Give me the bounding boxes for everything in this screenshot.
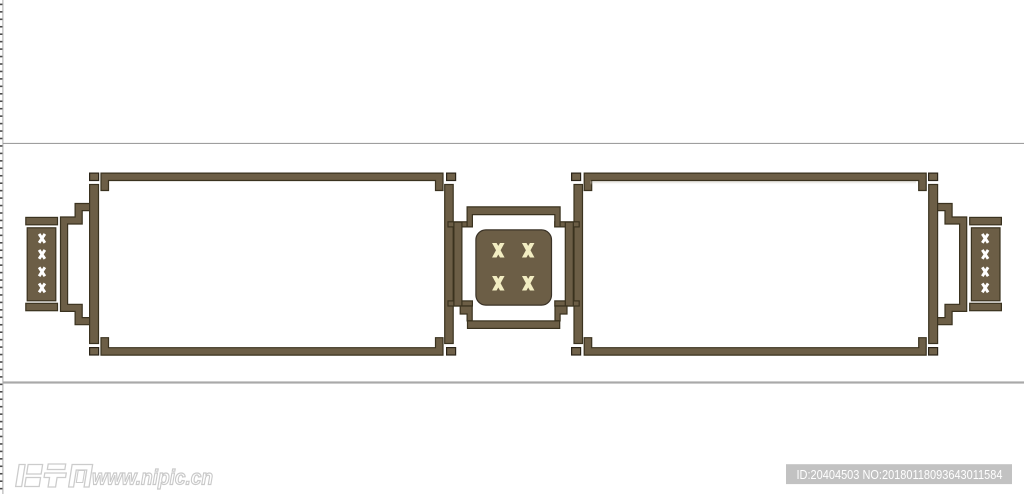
svg-text:www.nipic.cn: www.nipic.cn <box>92 467 213 490</box>
svg-text:ID:20404503 NO:201801180936430: ID:20404503 NO:20180118093643011584 <box>797 467 1003 482</box>
